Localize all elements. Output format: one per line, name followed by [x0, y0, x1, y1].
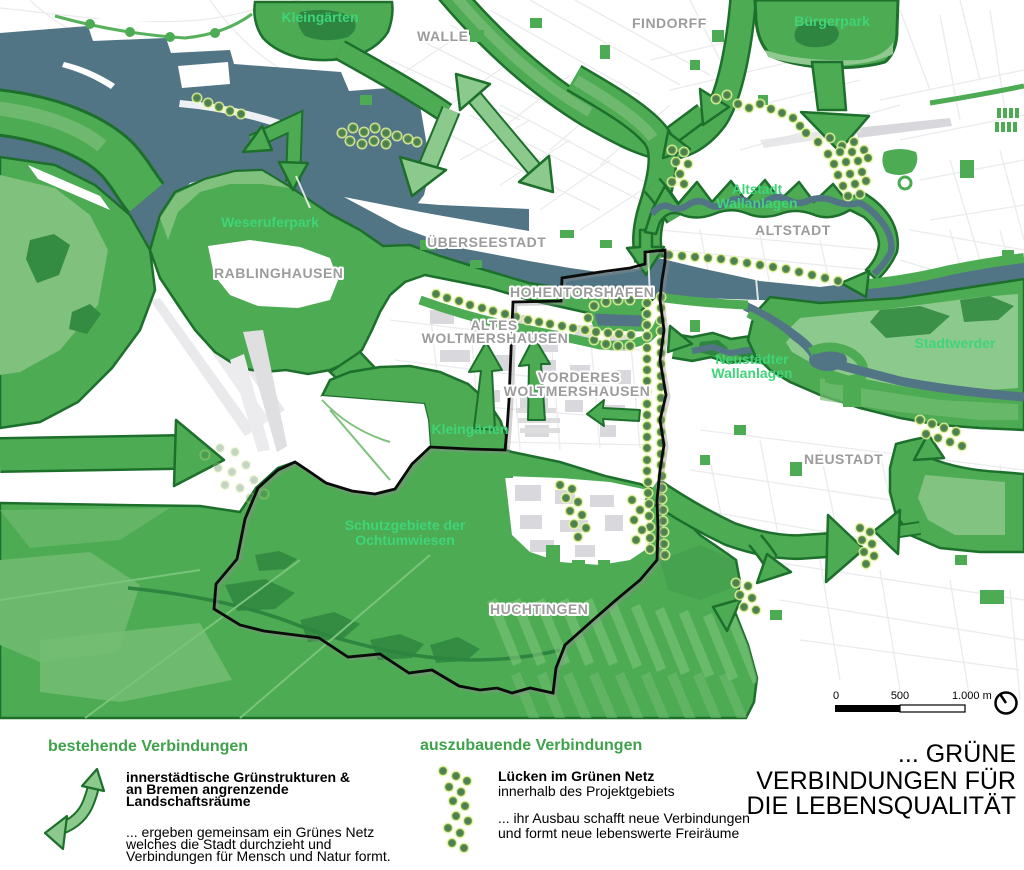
svg-text:WOLTMERSHAUSEN: WOLTMERSHAUSEN	[504, 383, 651, 399]
svg-text:Ochtumwiesen: Ochtumwiesen	[355, 532, 455, 548]
svg-text:ALTSTADT: ALTSTADT	[755, 222, 831, 238]
svg-text:1.000 m: 1.000 m	[952, 690, 992, 702]
svg-text:Weseruferpark: Weseruferpark	[221, 214, 319, 230]
svg-text:Stadtwerder: Stadtwerder	[915, 335, 996, 351]
svg-text:Bürgerpark: Bürgerpark	[794, 13, 870, 29]
svg-text:Lücken im Grünen Netz: Lücken im Grünen Netz	[498, 768, 654, 784]
svg-text:Kleingärten: Kleingärten	[281, 9, 358, 25]
svg-text:... ihr Ausbau schafft neue Ve: ... ihr Ausbau schafft neue Verbindungen	[498, 810, 750, 826]
svg-text:HUCHTINGEN: HUCHTINGEN	[490, 601, 588, 617]
svg-text:innerhalb des Projektgebiets: innerhalb des Projektgebiets	[498, 783, 675, 799]
svg-text:0: 0	[833, 690, 839, 702]
svg-text:NEUSTADT: NEUSTADT	[804, 451, 883, 467]
svg-text:Schutzgebiete der: Schutzgebiete der	[345, 517, 466, 533]
svg-text:ÜBERSEESTADT: ÜBERSEESTADT	[427, 234, 546, 250]
svg-text:WALLE: WALLE	[417, 28, 469, 44]
svg-text:Landschaftsräume: Landschaftsräume	[126, 793, 251, 809]
svg-text:FINDORFF: FINDORFF	[632, 15, 707, 31]
svg-text:... GRÜNE: ... GRÜNE	[898, 740, 1016, 768]
svg-text:Wallanlagen: Wallanlagen	[711, 365, 792, 381]
svg-text:VERBINDUNGEN FÜR: VERBINDUNGEN FÜR	[756, 767, 1016, 795]
svg-text:RABLINGHAUSEN: RABLINGHAUSEN	[214, 265, 343, 281]
svg-text:500: 500	[891, 690, 909, 702]
svg-text:auszubauende Verbindungen: auszubauende Verbindungen	[420, 737, 642, 754]
svg-text:bestehende Verbindungen: bestehende Verbindungen	[48, 738, 248, 755]
svg-text:Kleingärten: Kleingärten	[431, 421, 508, 437]
svg-text:HOHENTORSHAFEN: HOHENTORSHAFEN	[510, 284, 654, 300]
svg-text:und formt neue lebenswerte Fre: und formt neue lebenswerte Freiräume	[498, 825, 739, 841]
svg-text:Wallanlagen: Wallanlagen	[716, 195, 797, 211]
svg-text:Verbindungen für Mensch und Na: Verbindungen für Mensch und Natur formt.	[126, 848, 391, 864]
svg-text:DIE LEBENSQUALITÄT: DIE LEBENSQUALITÄT	[746, 792, 1016, 820]
svg-text:WOLTMERSHAUSEN: WOLTMERSHAUSEN	[422, 330, 569, 346]
